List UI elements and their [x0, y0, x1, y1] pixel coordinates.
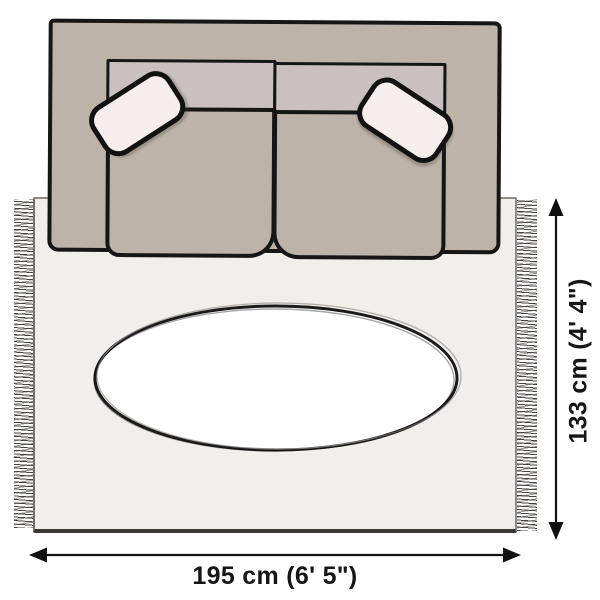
rug-size-guide-diagram: 195 cm (6' 5") 133 cm (4' 4") — [0, 0, 600, 600]
sofa — [43, 15, 507, 268]
rug-fringe-right — [517, 199, 537, 531]
height-dimension-arrow — [549, 198, 564, 540]
height-dimension-label: 133 cm (4' 4") — [565, 278, 594, 443]
width-dimension-arrow — [29, 548, 521, 563]
rug-oval-cutout — [85, 298, 467, 462]
rug-fringe-left — [14, 199, 33, 528]
width-dimension-label: 195 cm (6' 5") — [115, 562, 435, 591]
